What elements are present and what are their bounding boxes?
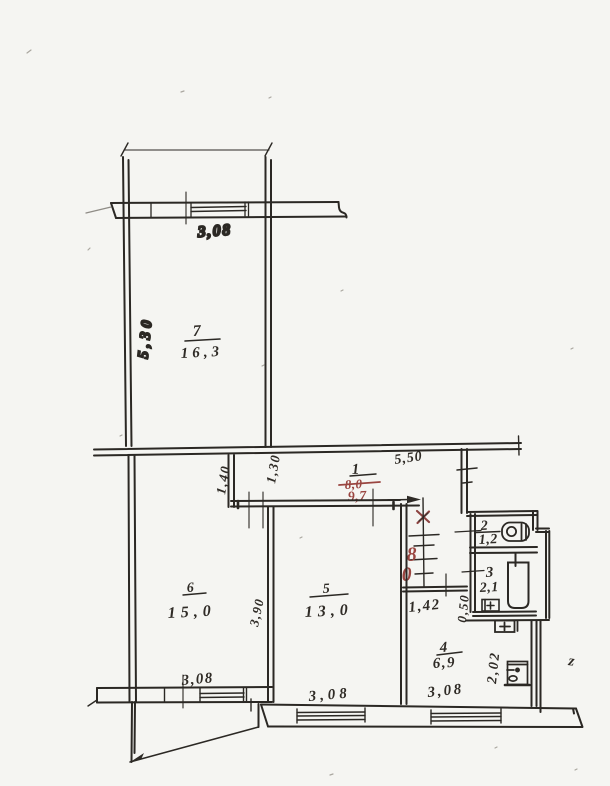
svg-text:z: z <box>566 653 576 670</box>
svg-text:3,90: 3,90 <box>246 596 267 628</box>
svg-text:9,7: 9,7 <box>347 489 367 505</box>
svg-text:2,02: 2,02 <box>485 651 503 686</box>
svg-text:1,40: 1,40 <box>213 464 233 496</box>
svg-text:0,50: 0,50 <box>454 593 472 623</box>
svg-text:3,08: 3,08 <box>196 222 232 241</box>
svg-text:2,1: 2,1 <box>478 580 499 596</box>
svg-text:15,0: 15,0 <box>167 603 216 622</box>
svg-text:7: 7 <box>192 323 202 340</box>
svg-text:3,08: 3,08 <box>180 670 215 689</box>
svg-text:5: 5 <box>322 582 331 597</box>
svg-text:5,30: 5,30 <box>136 316 156 360</box>
svg-text:3,08: 3,08 <box>307 685 351 705</box>
svg-text:5,50: 5,50 <box>393 449 423 468</box>
svg-text:13,0: 13,0 <box>304 602 353 621</box>
svg-text:3,08: 3,08 <box>426 681 465 701</box>
svg-text:1,30: 1,30 <box>263 453 283 485</box>
svg-text:1,42: 1,42 <box>408 597 442 616</box>
svg-text:3: 3 <box>484 565 495 582</box>
svg-text:16,3: 16,3 <box>180 344 223 362</box>
svg-text:6,9: 6,9 <box>432 655 456 672</box>
svg-text:1,2: 1,2 <box>478 532 498 548</box>
